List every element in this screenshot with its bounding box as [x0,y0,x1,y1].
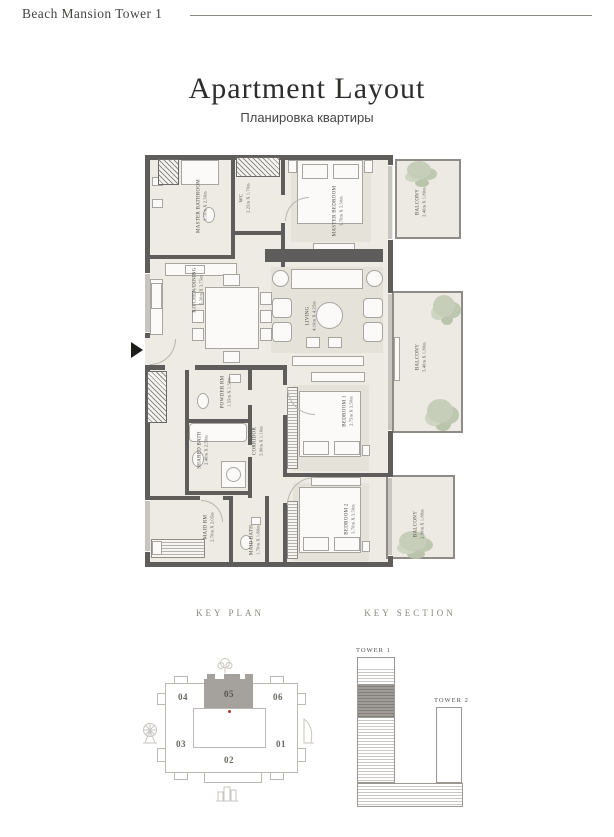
sofa [291,269,363,289]
key-section-diagram: TOWER 1 TOWER 2 [350,645,470,815]
room-label-kitchen-dining: KITCHEN/DINING 5.30m X 3.75m [192,267,203,312]
tower1-highlight-floors [358,684,394,718]
side-chair [272,270,289,287]
room-label-bedroom-1: BEDROOM 1 2.75m X 3.50m [342,395,353,426]
tree-icon [215,656,235,674]
key-plan-heading: KEY PLAN [140,608,320,618]
plant [407,161,431,179]
building-core [193,708,266,748]
room-label-shared-bath: SHARED BATH 2.40m X 2.50m [197,431,208,469]
wall [145,562,393,567]
room-label-maid-rm: MAID RM 2.70m X 2.05m [203,512,214,542]
wall [248,370,252,390]
shaft [147,371,167,423]
room-label-balcony-top: BALCONY 2.40m X 1.80m [415,187,426,217]
unit-label-04: 04 [178,692,188,702]
wall [388,240,393,293]
stove [151,283,162,309]
dresser [311,477,361,486]
wall [145,496,200,500]
outline-tab [157,748,166,762]
outline-tab [297,693,306,705]
chair [260,310,272,323]
room-label-master-bedroom: MASTER BEDROOM 3.70m X 3.50m [332,186,343,237]
location-dot [228,710,231,713]
unit-label-03: 03 [176,739,186,749]
window [388,477,392,556]
dresser [311,372,365,382]
brochure-page: Beach Mansion Tower 1 Apartment Layout П… [0,0,614,837]
room-label-balcony-bottom: BALCONY 2.90m X 1.80m [413,509,424,539]
chair [260,292,272,305]
unit-05-tab [245,674,253,680]
nightstand [362,541,370,552]
wall [185,370,189,495]
pillow [334,537,360,551]
room-label-balcony-middle: BALCONY 5.40m X 1.80m [415,342,426,372]
wall [283,473,389,477]
room-label-bedroom-2: BEDROOM 2 3.70m X 3.50m [344,503,355,534]
outline-tab [157,693,166,705]
room-label-powder-rm: POWDER RM 1.55m X 1.50m [220,376,231,409]
page-subtitle: Планировка квартиры [0,110,614,125]
armchair [363,322,383,342]
wall [185,419,249,423]
wall [281,155,285,195]
sink [152,199,163,208]
floor-plan: MASTER BATHROOM 3.10m X 2.50m WC 2.25m X… [145,155,467,569]
outline-tab [297,748,306,762]
window [145,500,150,552]
header-rule [190,15,592,16]
wall [388,556,393,567]
side-chair [366,270,383,287]
pillow [333,164,359,179]
unit-05-tab [207,674,215,680]
ottoman [328,337,342,348]
wardrobe [287,501,298,559]
wall [145,255,235,259]
chair [260,328,272,341]
unit-05-tab [224,674,240,680]
room-label-wc: WC 2.25m X 1.70m [239,183,250,213]
nightstand [364,160,373,173]
ferris-wheel-icon [141,722,159,744]
shaft [158,159,179,185]
closet-shelving [236,157,280,177]
wall [185,491,249,495]
wall [265,496,269,562]
key-plan-diagram: 04 05 06 03 02 01 [140,660,320,812]
key-section-heading: KEY SECTION [350,608,470,618]
wall [195,365,287,370]
unit-label-01: 01 [276,739,286,749]
nightstand [288,160,297,173]
armchair [272,298,292,318]
tower1-section [357,657,395,783]
city-buildings-icon [216,784,238,802]
pillow [302,164,328,179]
chair [223,274,240,286]
podium-section [357,783,463,807]
outline-tab [270,772,284,780]
plant [427,399,453,423]
outline-tab [174,772,188,780]
armchair [272,322,292,342]
chair [223,351,240,363]
room-label-corridor: CORRIDOR 5.90m X 1.10m [252,426,263,456]
wall [283,370,287,385]
pillow [152,541,162,555]
outline-tab [174,676,188,684]
console-table [292,356,364,366]
window [388,293,392,431]
dining-table [205,287,259,349]
plant [433,295,455,317]
tower1-label: TOWER 1 [356,647,391,654]
outline-tab [270,676,284,684]
tower2-section [436,707,462,783]
wall [231,231,285,235]
sink [251,517,261,525]
balcony-bench [394,337,400,381]
wall [229,496,233,562]
entry-arrow [131,342,143,358]
armchair [363,298,383,318]
window [145,273,150,333]
sail-building-icon [300,716,316,744]
wall [248,405,252,445]
wall [283,503,287,567]
outline-tab [204,772,262,783]
tv-wall [265,249,383,262]
tower2-label: TOWER 2 [434,697,469,704]
window [388,165,392,240]
pillow [303,537,329,551]
wall [388,431,393,477]
wall [283,415,287,477]
pillow [303,441,329,455]
coffee-table [316,302,343,329]
tower1-cap [358,658,394,667]
pillow [334,441,360,455]
wall [231,155,235,259]
unit-label-06: 06 [273,692,283,702]
nightstand [362,445,370,456]
washer-drum [226,467,241,482]
wall [388,155,393,165]
page-header-title: Beach Mansion Tower 1 [22,6,162,22]
chair [192,328,204,341]
room-label-maid-bath: MAID BATH 1.70m X 1.60m [249,525,260,555]
room-label-living: LIVING 4.10m X 4.25m [305,301,316,331]
toilet [197,393,209,409]
page-title: Apartment Layout [0,72,614,106]
room-label-master-bathroom: MASTER BATHROOM 3.10m X 2.50m [196,179,207,233]
unit-label-02: 02 [224,755,234,765]
wall [145,365,165,370]
unit-label-05: 05 [224,689,234,699]
ottoman [306,337,320,348]
